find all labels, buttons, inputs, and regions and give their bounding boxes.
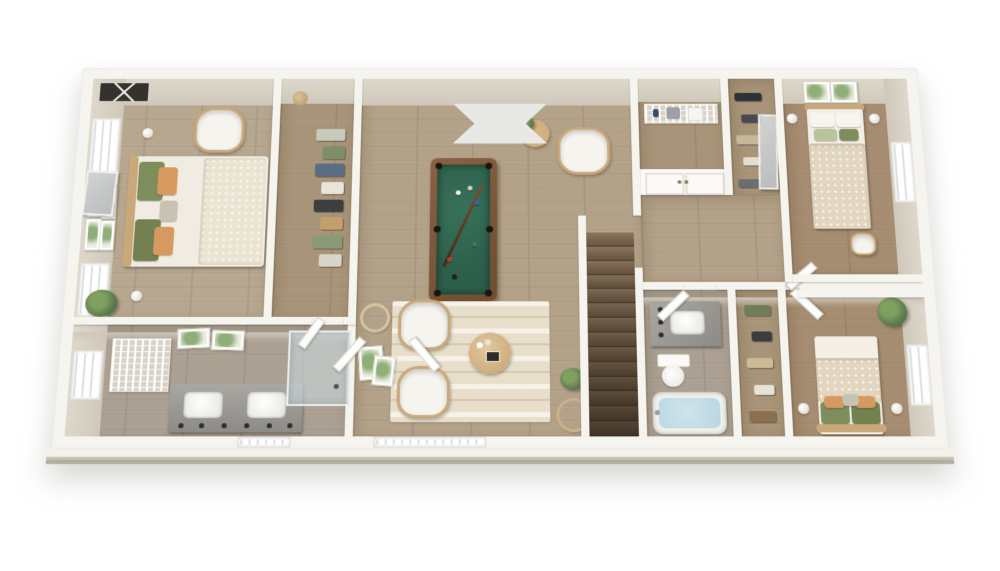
stair-tread	[587, 289, 635, 303]
hanging-clothes-item	[315, 164, 345, 176]
hanging-clothes-item	[313, 200, 343, 212]
vanity-faucet-3	[221, 423, 226, 428]
stair-tread	[589, 377, 638, 392]
stair-tread	[587, 304, 636, 318]
linen-shelves	[109, 338, 172, 392]
lamp-bedroom3-left	[798, 403, 810, 414]
laundry-basket-gray	[666, 107, 680, 119]
wall-bedroom3-north	[797, 290, 924, 298]
pool-ball	[468, 186, 473, 191]
bedroom3-desk-x-legs	[103, 83, 145, 101]
hanging-clothes-item	[749, 411, 777, 422]
vanity-sink-right	[247, 392, 287, 418]
north-wall-face-laundry	[637, 79, 721, 102]
window-pane	[893, 144, 913, 199]
wall-bedroom2-south	[793, 274, 923, 282]
stair-tread	[588, 332, 637, 347]
stair-tread	[589, 406, 639, 421]
building	[51, 68, 949, 449]
pool-ball	[447, 257, 452, 262]
detergent-bottle	[653, 109, 659, 117]
round-coffee-table	[468, 332, 511, 373]
bathroom2-vanity	[650, 301, 722, 346]
wall-art-bedroom2-2	[830, 81, 858, 102]
wall-art-primary-4	[98, 220, 115, 250]
vanity-faucet-4	[244, 423, 249, 428]
pool-ball	[472, 242, 477, 247]
laundry-door-panel-left	[645, 173, 685, 195]
bedroom2-duvet	[809, 143, 872, 228]
window-pane	[240, 439, 288, 444]
vanity-faucet-1	[178, 423, 183, 428]
pool-ball	[456, 190, 461, 195]
bathtub	[652, 392, 727, 434]
stair-tread	[588, 318, 637, 333]
bedroom2-pillow-white-1	[810, 113, 835, 127]
stair-tread	[587, 275, 635, 289]
laundry-basket-white	[688, 107, 704, 121]
bedroom2-desk-chair	[850, 232, 877, 255]
window-pane	[376, 439, 483, 444]
hanging-clothes-item	[320, 218, 343, 231]
staircase	[586, 232, 639, 436]
pillow-orange-1	[157, 167, 178, 195]
pool-ball	[452, 275, 457, 280]
lamp-bedroom2-right	[869, 114, 880, 124]
wall-hall-south-left	[643, 282, 683, 290]
toilet-bowl	[662, 365, 685, 387]
north-wall-face-game-room	[362, 79, 631, 106]
bedroom2-pillow-green	[839, 129, 859, 141]
lamp-bedroom3-right	[891, 403, 903, 414]
interior	[65, 79, 936, 437]
laundry-door-handles	[677, 180, 681, 184]
stair-treads	[586, 232, 639, 436]
stair-tread	[588, 347, 637, 362]
hanging-clothes-item	[751, 331, 772, 341]
hanging-clothes-item	[734, 93, 762, 101]
hanging-clothes-item	[746, 358, 773, 369]
console-x-detail	[88, 104, 912, 144]
floor-plan-render	[0, 0, 1000, 571]
window-bedroom2	[890, 142, 916, 203]
laundry-double-doors	[640, 169, 725, 195]
window-pane	[909, 347, 930, 403]
vanity-faucet-2	[199, 423, 204, 428]
vanity-sink-left	[183, 392, 223, 418]
bedroom2-pillow-floral	[814, 129, 838, 141]
hanging-clothes-item	[321, 182, 344, 194]
wall-art-bedroom2-1	[803, 81, 831, 102]
pool-balls	[436, 165, 490, 295]
laundry-door-panel-right	[685, 173, 725, 195]
stair-tread	[589, 391, 638, 406]
coffee-table-cups	[477, 342, 483, 348]
bedroom2-pillow-white-2	[836, 113, 861, 127]
bathroom-leaning-mirror-1	[177, 328, 209, 349]
bedroom3-closet-clothes	[742, 305, 776, 422]
stair-tread	[586, 247, 634, 261]
vanity-faucet-6	[287, 423, 292, 428]
stair-tread	[587, 261, 635, 275]
wall-bath-row-north-left	[74, 317, 312, 325]
window-pane	[73, 353, 101, 397]
pool-ball	[474, 200, 479, 205]
closet-clothes-rail	[310, 129, 346, 267]
pool-table-felt	[436, 165, 490, 295]
hanging-clothes-item	[312, 236, 342, 249]
bedroom3-bed	[814, 336, 884, 434]
shower-fixture	[334, 384, 339, 389]
pillow-orange-2	[153, 227, 175, 255]
bathtub-faucet	[655, 410, 660, 415]
coffee-table-tray	[486, 351, 500, 362]
bathroom-leaning-mirror-2	[211, 330, 245, 351]
wall-hall-south-right	[717, 282, 785, 290]
bedroom3-pillow-textured	[842, 394, 859, 406]
hanging-clothes-item	[319, 254, 342, 267]
window-primary-bathroom	[70, 350, 104, 400]
hanging-clothes-item	[754, 384, 775, 395]
lamp-bedroom2-left	[786, 114, 797, 124]
hanging-clothes-item	[322, 146, 345, 158]
leaning-frame-2	[371, 355, 396, 387]
vanity-faucet-5	[267, 423, 272, 428]
double-vanity	[168, 384, 304, 432]
toilet	[657, 354, 689, 388]
stair-tread	[588, 362, 637, 377]
window-bottom-gameroom	[373, 436, 487, 447]
bedroom2-bed	[806, 104, 871, 229]
pillow-textured	[159, 201, 178, 222]
bathroom2-faucet-3	[659, 332, 664, 337]
primary-bed	[122, 156, 269, 266]
bathtub-water	[658, 398, 721, 428]
hall-floor	[641, 195, 785, 282]
primary-duvet	[198, 158, 267, 265]
stair-tread	[589, 421, 639, 436]
closet-mirror	[81, 170, 118, 216]
bedroom3-headboard	[816, 424, 886, 432]
lounge-chair-2	[396, 366, 450, 418]
window-bottom-bath	[237, 436, 291, 447]
window-bedroom3	[906, 344, 933, 406]
hanging-clothes-item	[744, 305, 771, 315]
exterior-walls	[51, 68, 949, 449]
pool-table	[429, 158, 497, 301]
wall-bath-row-north-right	[344, 317, 356, 325]
hall-closet-mirror	[758, 114, 779, 190]
bathroom2-sink	[670, 311, 705, 334]
laundry-wire-shelf	[644, 104, 718, 124]
lounge-chair-1	[398, 299, 451, 350]
stair-tread	[586, 232, 634, 246]
